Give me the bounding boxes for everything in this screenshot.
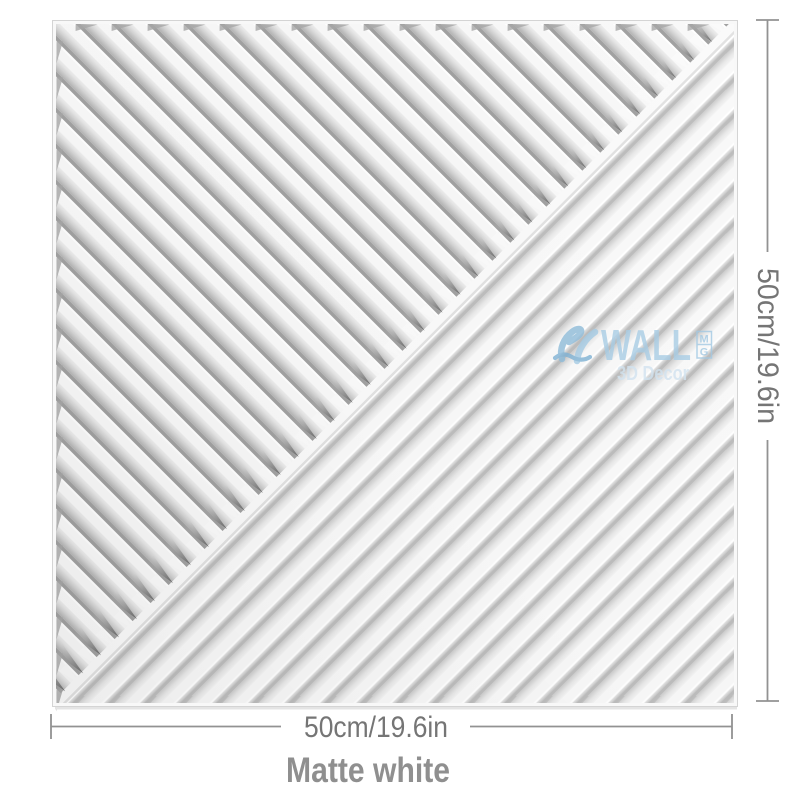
svg-text:50cm/19.6in: 50cm/19.6in [751, 268, 784, 424]
svg-text:M: M [700, 334, 709, 346]
svg-text:3D Decor: 3D Decor [617, 363, 689, 385]
svg-text:G: G [700, 347, 709, 359]
svg-text:Matte white: Matte white [286, 751, 450, 790]
svg-text:50cm/19.6in: 50cm/19.6in [304, 711, 448, 744]
